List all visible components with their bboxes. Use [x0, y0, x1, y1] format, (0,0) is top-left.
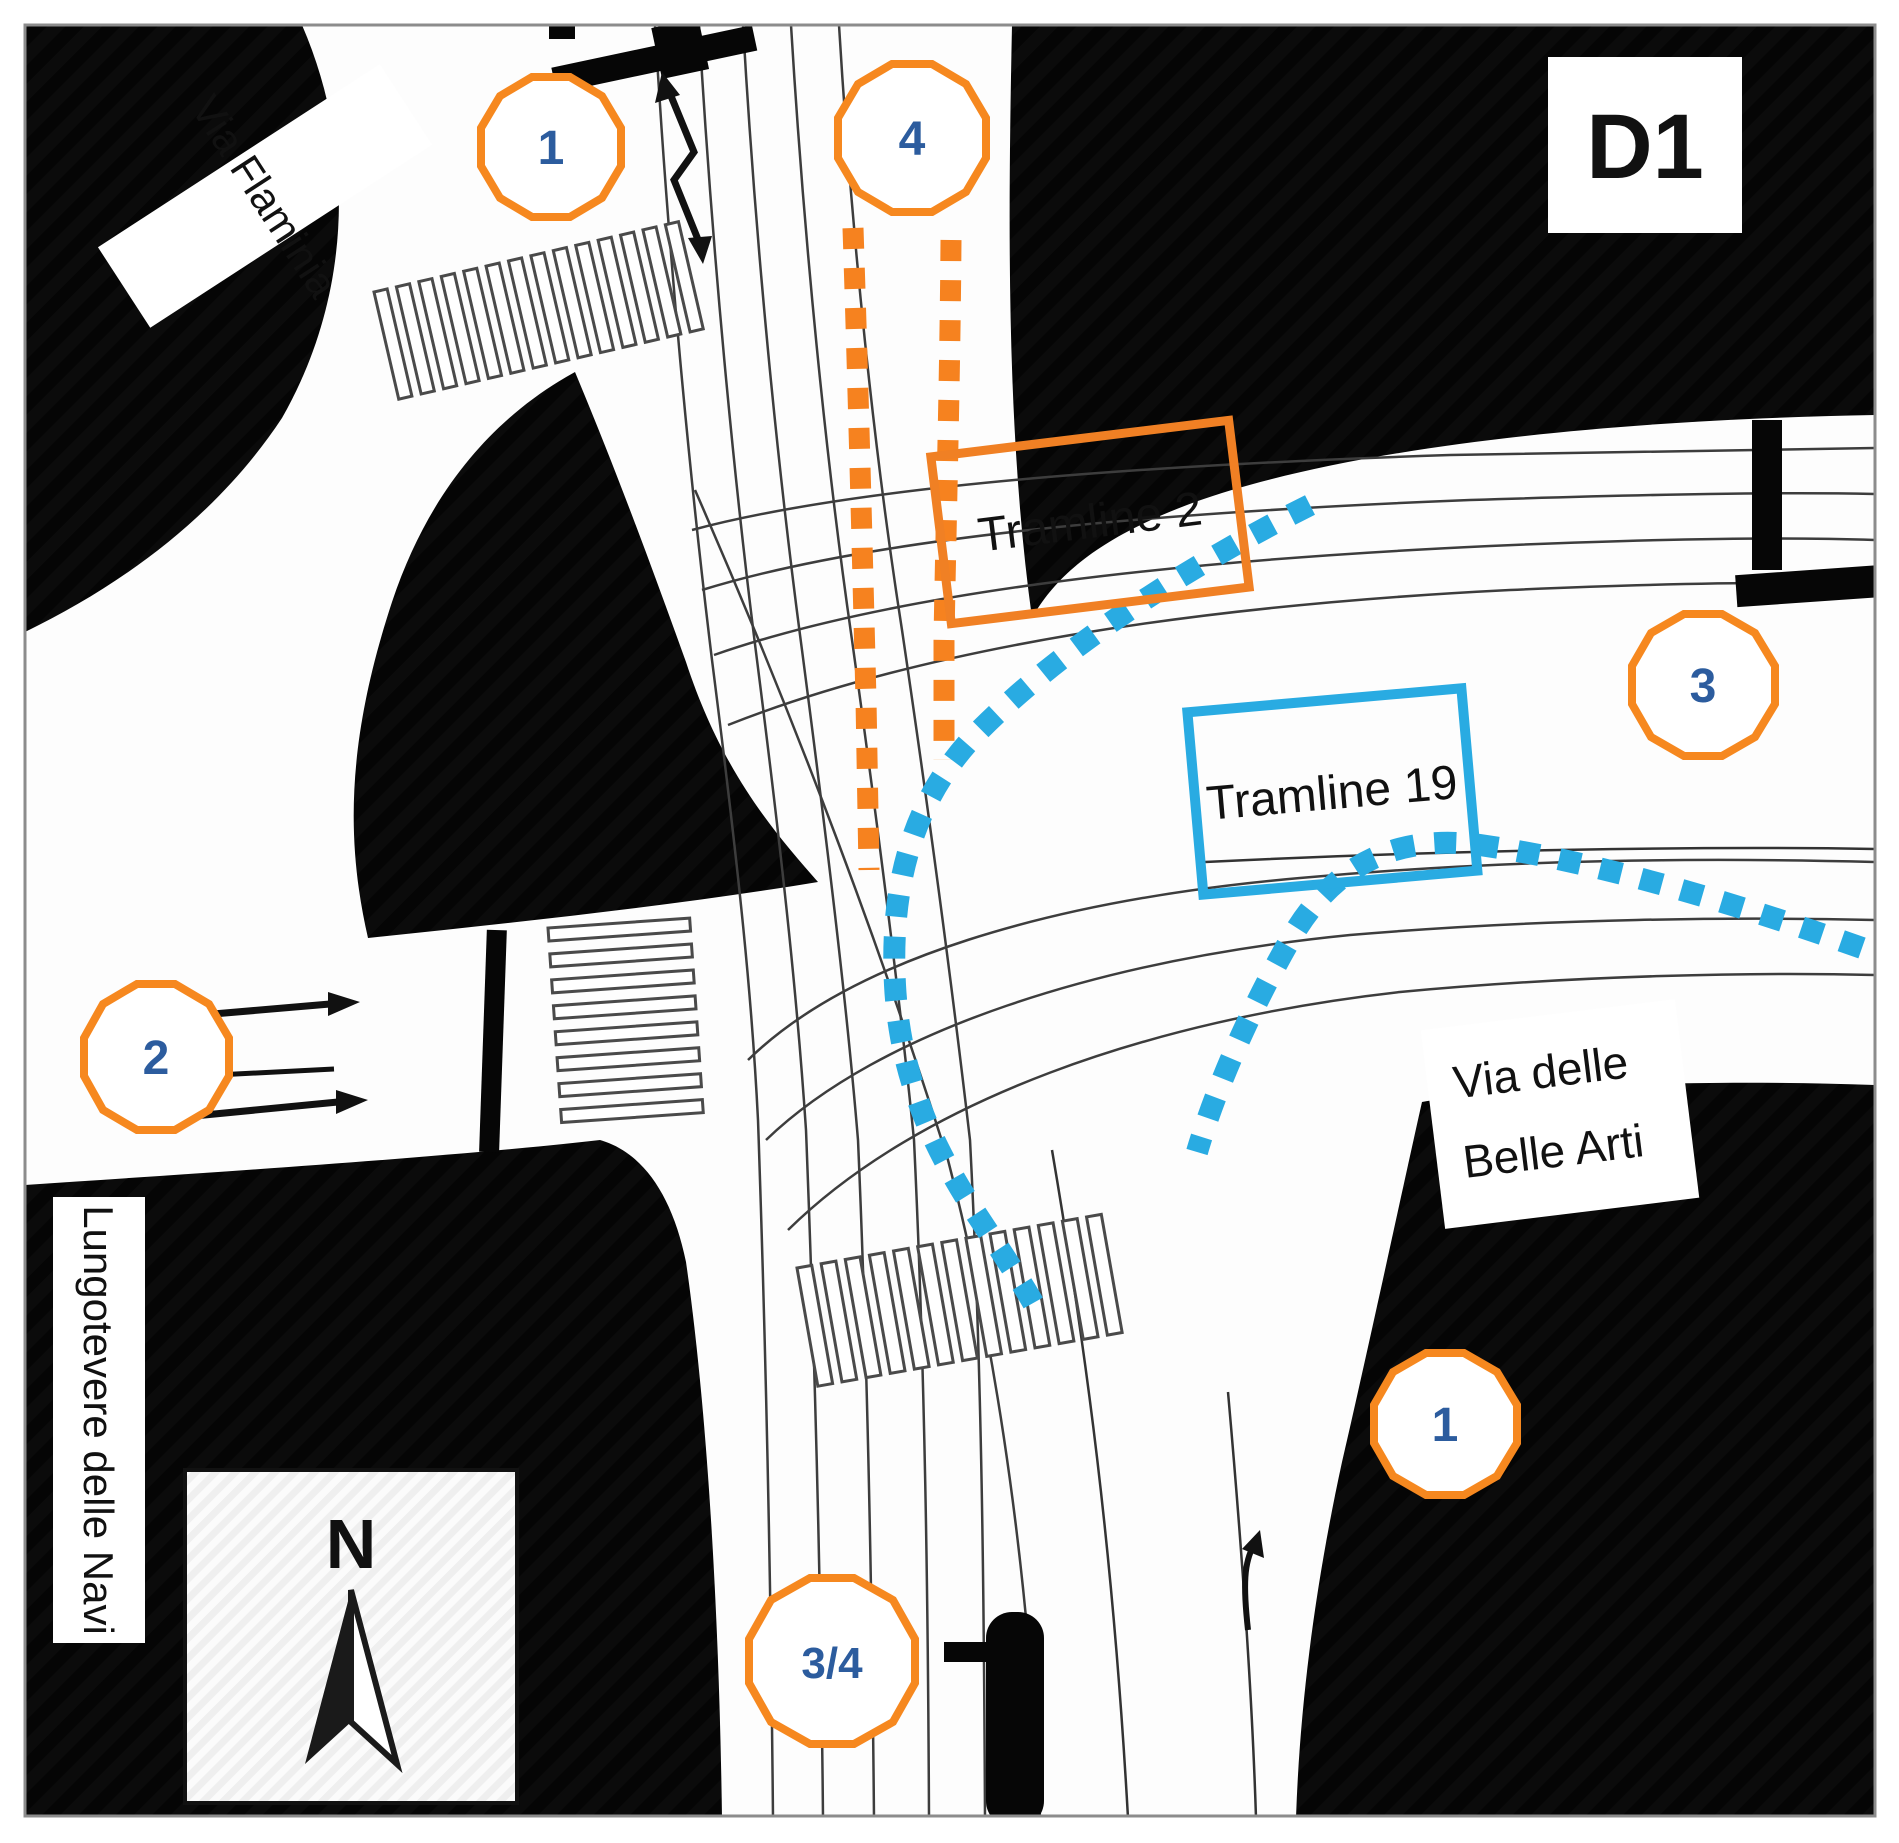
marker-tram-south-number: 3/4: [801, 1639, 863, 1688]
marker-east-number: 3: [1690, 660, 1717, 713]
figure-page: Tramline 2 Tramline 19 Via Flaminia Lung…: [0, 0, 1899, 1843]
compass-north-text: N: [326, 1505, 377, 1583]
marker-belle-arti-south: 1: [1374, 1353, 1517, 1495]
marker-lungotevere-west: 2: [84, 984, 229, 1130]
panel-id-text: D1: [1586, 96, 1704, 198]
marker-east: 3: [1632, 614, 1775, 756]
marker-tram-south: 3/4: [749, 1578, 915, 1744]
marker-flaminia-north-number: 1: [538, 122, 565, 175]
marker-flaminia-north: 1: [481, 77, 621, 217]
lungotevere-text: Lungotevere delle Navi: [75, 1205, 122, 1635]
panel-id-box: D1: [1548, 57, 1742, 233]
marker-tram-north-number: 4: [899, 113, 926, 166]
marker-lungotevere-west-number: 2: [143, 1032, 170, 1085]
tram-platform-south: [986, 1612, 1044, 1827]
tram-platform-east-post: [1752, 420, 1782, 570]
street-label-belle-arti: Via delle Belle Arti: [1421, 999, 1699, 1229]
platform-stub-north: [549, 25, 575, 39]
intersection-diagram: Tramline 2 Tramline 19 Via Flaminia Lung…: [0, 0, 1899, 1843]
platform-stub-south: [944, 1642, 988, 1662]
marker-tram-north: 4: [838, 64, 986, 212]
street-label-lungotevere: Lungotevere delle Navi: [53, 1197, 145, 1643]
compass-box: N: [185, 1470, 517, 1803]
marker-belle-arti-south-number: 1: [1432, 1399, 1459, 1452]
